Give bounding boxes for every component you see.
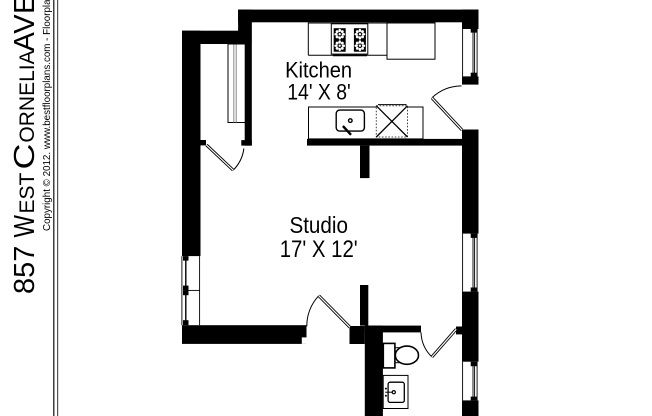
svg-text:Studio: Studio: [289, 212, 348, 238]
svg-text:ORNELIA: ORNELIA: [16, 50, 39, 142]
svg-text:857: 857: [9, 246, 41, 294]
svg-text:17' X 12': 17' X 12': [280, 237, 358, 263]
svg-text:14' X 8': 14' X 8': [287, 79, 351, 104]
svg-text:AVENUE: AVENUE: [9, 0, 41, 52]
svg-text:C: C: [9, 144, 41, 170]
svg-text:W: W: [9, 214, 41, 237]
svg-text:Copyright © 2012. www.bestfloo: Copyright © 2012. www.bestfloorplans.com…: [42, 0, 53, 231]
svg-text:EST: EST: [16, 172, 39, 213]
